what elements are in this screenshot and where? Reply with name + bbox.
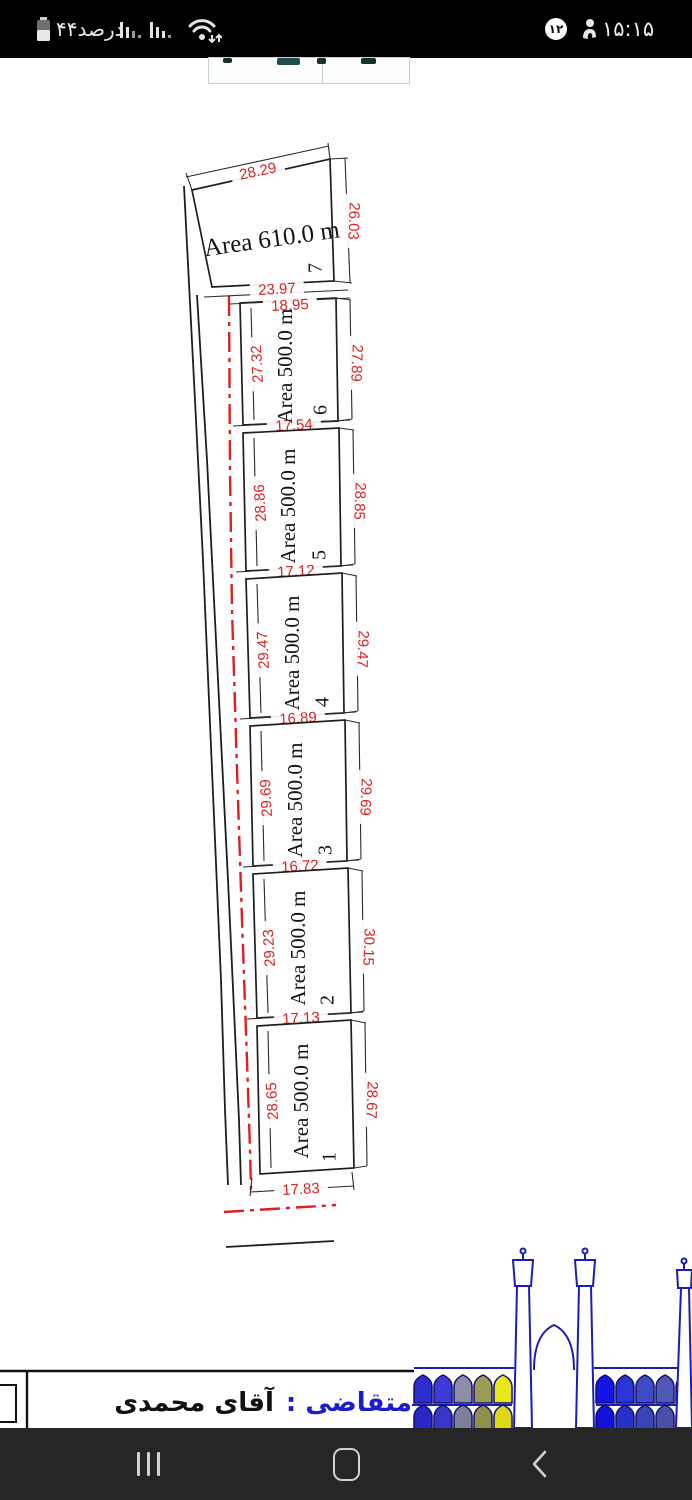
minaret-left <box>513 1248 533 1428</box>
status-bar: ۴۴درصد ۱۲ ۱۵:۱۵ <box>0 0 692 58</box>
arcade-arch <box>474 1405 492 1428</box>
recents-icon <box>137 1452 140 1476</box>
arcade-arch <box>596 1375 614 1403</box>
dim-label: 29.69 <box>356 778 374 816</box>
home-button[interactable] <box>316 1428 376 1500</box>
plot-5: 28.86 28.85 17.12 Area 500.0 m 5 <box>236 428 369 581</box>
minaret-right <box>676 1258 692 1428</box>
arcade-arch <box>434 1405 452 1428</box>
plot-3: 29.69 29.69 16.72 Area 500.0 m 3 <box>243 720 375 876</box>
dim-label: 27.89 <box>347 344 365 382</box>
plot-6-area-label: Area 500.0 m <box>273 309 297 424</box>
plot-4: 29.47 29.47 16.89 Area 500.0 m 4 <box>240 573 372 728</box>
clock-label: ۱۵:۱۵ <box>602 0 654 58</box>
dim-label: 16.89 <box>279 709 317 728</box>
notification-count-badge: ۱۲ <box>545 18 567 40</box>
app-notification-icon <box>577 18 599 40</box>
applicant-name: آقای محمدی <box>114 1388 274 1418</box>
arcade-arch <box>636 1405 654 1428</box>
arcade-arch <box>474 1375 492 1403</box>
arcade-arch <box>636 1375 654 1403</box>
dim-label: 28.86 <box>251 484 270 522</box>
plot-5-number: 5 <box>309 550 331 560</box>
dim-label: 29.69 <box>257 779 276 817</box>
dim-label: 29.47 <box>353 630 371 668</box>
plot-2: 29.23 30.15 17.13 Area 500.0 m 2 <box>247 868 378 1028</box>
dim-label: 17.12 <box>277 562 315 581</box>
plot-1-area-label: Area 500.0 m <box>289 1044 313 1159</box>
dim-label: 17.83 <box>282 1180 320 1199</box>
wifi-icon <box>188 15 222 45</box>
battery-icon <box>36 17 51 42</box>
south-road <box>224 1205 336 1247</box>
dim-label: 17.13 <box>282 1009 320 1028</box>
dim-label: 28.29 <box>238 159 278 183</box>
recents-button[interactable] <box>118 1428 178 1500</box>
plot-4-number: 4 <box>312 697 334 707</box>
back-button[interactable] <box>510 1428 570 1500</box>
plot-2-number: 2 <box>317 995 339 1005</box>
back-icon <box>532 1450 548 1478</box>
plot-6-number: 6 <box>310 405 332 415</box>
arcade-arch <box>656 1375 674 1403</box>
dim-label: 28.85 <box>350 482 368 520</box>
plot-3-area-label: Area 500.0 m <box>283 743 307 858</box>
signal-sim2-icon <box>150 20 174 38</box>
arcade-arch <box>616 1405 634 1428</box>
road-centerline <box>229 296 251 1190</box>
arcade-arch <box>596 1405 614 1428</box>
mosque-logo <box>412 1248 692 1428</box>
dim-label: 28.65 <box>263 1082 282 1120</box>
dim-label: 29.23 <box>260 929 279 967</box>
arcade-arch <box>434 1375 452 1403</box>
navigation-bar <box>0 1428 692 1500</box>
dim-label: 27.32 <box>248 345 267 383</box>
arcade-arch <box>414 1405 432 1428</box>
arcade-arch <box>616 1375 634 1403</box>
plot-5-area-label: Area 500.0 m <box>276 449 300 564</box>
dim-label: 26.03 <box>344 202 362 240</box>
signal-sim1-icon <box>120 20 144 38</box>
plot-7-number: 7 <box>305 263 327 273</box>
dim-label: 29.47 <box>254 631 273 669</box>
arcade-arch <box>494 1375 512 1403</box>
arcade-arch <box>414 1375 432 1403</box>
plot-6: 18.95 27.32 27.89 17.54 Area 500.0 m 6 <box>230 296 366 436</box>
phone-screen: { "status_bar": { "battery_label": "۴۴در… <box>0 0 692 1500</box>
plot-7-area-label: Area 610.0 m <box>202 216 342 262</box>
plot-1: 28.65 28.67 17.83 Area 500.0 m 1 <box>250 1020 381 1199</box>
iwan-arch <box>534 1325 574 1370</box>
plot-3-number: 3 <box>315 845 337 855</box>
battery-percent-label: ۴۴درصد <box>56 0 124 58</box>
plot-2-area-label: Area 500.0 m <box>286 891 310 1006</box>
arcade-arch <box>454 1405 472 1428</box>
arcade-arch <box>656 1405 674 1428</box>
plot-1-number: 1 <box>319 1152 341 1162</box>
dim-label: 30.15 <box>359 928 377 966</box>
title-block-row: متقاضی : آقای محمدی <box>60 1382 412 1424</box>
arcade-arch <box>494 1405 512 1428</box>
survey-drawing-canvas[interactable]: 28.29 26.03 23.97 Area 610.0 m 7 18.95 <box>0 60 692 1428</box>
plot-7: 28.29 26.03 23.97 Area 610.0 m 7 <box>186 143 363 299</box>
dim-label: 28.67 <box>362 1081 380 1119</box>
dim-label: 16.72 <box>281 857 319 876</box>
arcade-arch <box>454 1375 472 1403</box>
plot-4-area-label: Area 500.0 m <box>280 596 304 711</box>
home-icon <box>333 1448 360 1481</box>
minaret-center <box>575 1248 595 1428</box>
applicant-label: متقاضی : <box>286 1388 412 1418</box>
